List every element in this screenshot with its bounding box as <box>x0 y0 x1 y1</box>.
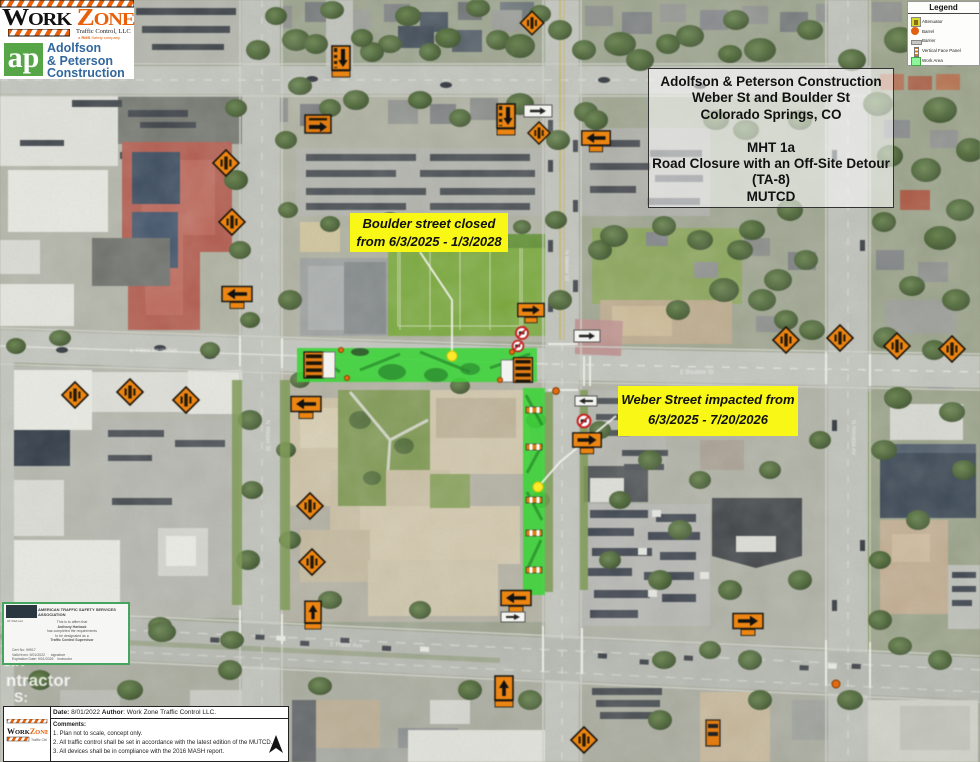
svg-text:E Boulder St: E Boulder St <box>680 370 714 376</box>
svg-text:N Weber St: N Weber St <box>563 250 569 281</box>
svg-text:ntractor: ntractor <box>6 671 71 690</box>
svg-text:WORKZONE: WORKZONE <box>7 727 48 736</box>
svg-text:N Nevada Av: N Nevada Av <box>850 420 856 455</box>
svg-text:N Weber St: N Weber St <box>264 420 270 451</box>
svg-text:E Pikes Peak Ave: E Pikes Peak Ave <box>130 348 178 354</box>
svg-text:S:: S: <box>14 689 28 705</box>
svg-text:Traffic Ctrl: Traffic Ctrl <box>31 738 47 742</box>
